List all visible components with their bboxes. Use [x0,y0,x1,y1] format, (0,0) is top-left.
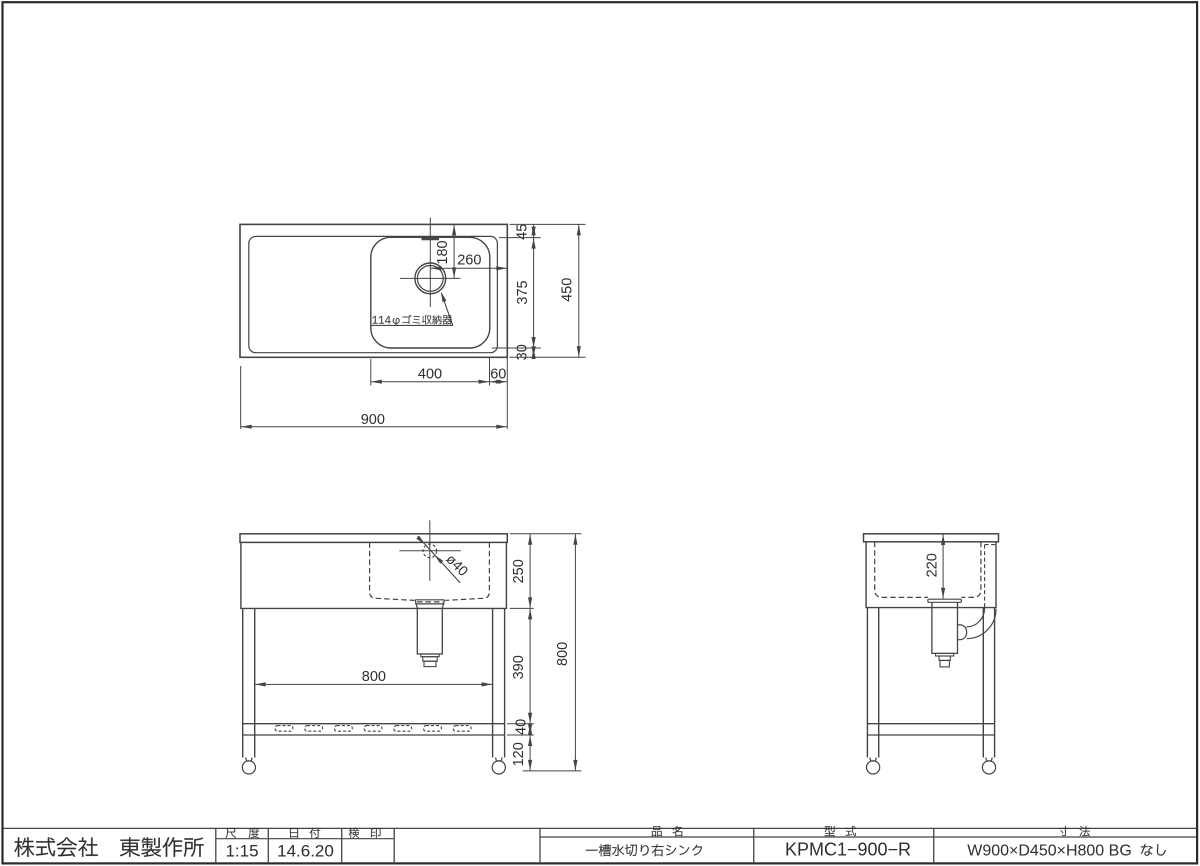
svg-text:180: 180 [435,240,451,264]
svg-text:260: 260 [457,253,481,269]
svg-text:120: 120 [511,742,527,766]
svg-text:30: 30 [514,344,530,360]
svg-text:800: 800 [362,669,386,685]
svg-text:390: 390 [511,655,527,679]
svg-text:800: 800 [555,642,571,666]
svg-text:220: 220 [924,553,940,577]
svg-text:375: 375 [515,280,531,304]
svg-text:60: 60 [490,366,506,382]
svg-text:14.6.20: 14.6.20 [277,842,334,861]
svg-text:900: 900 [361,412,385,428]
svg-text:W900×D450×H800 BG: W900×D450×H800 BG [967,842,1132,859]
svg-text:450: 450 [560,278,576,302]
svg-text:40: 40 [513,719,529,735]
svg-text:400: 400 [418,366,442,382]
svg-text:KPMC1−900−R: KPMC1−900−R [785,840,911,860]
svg-text:45: 45 [514,224,530,240]
svg-text:250: 250 [511,559,527,583]
svg-text:1:15: 1:15 [225,842,258,861]
